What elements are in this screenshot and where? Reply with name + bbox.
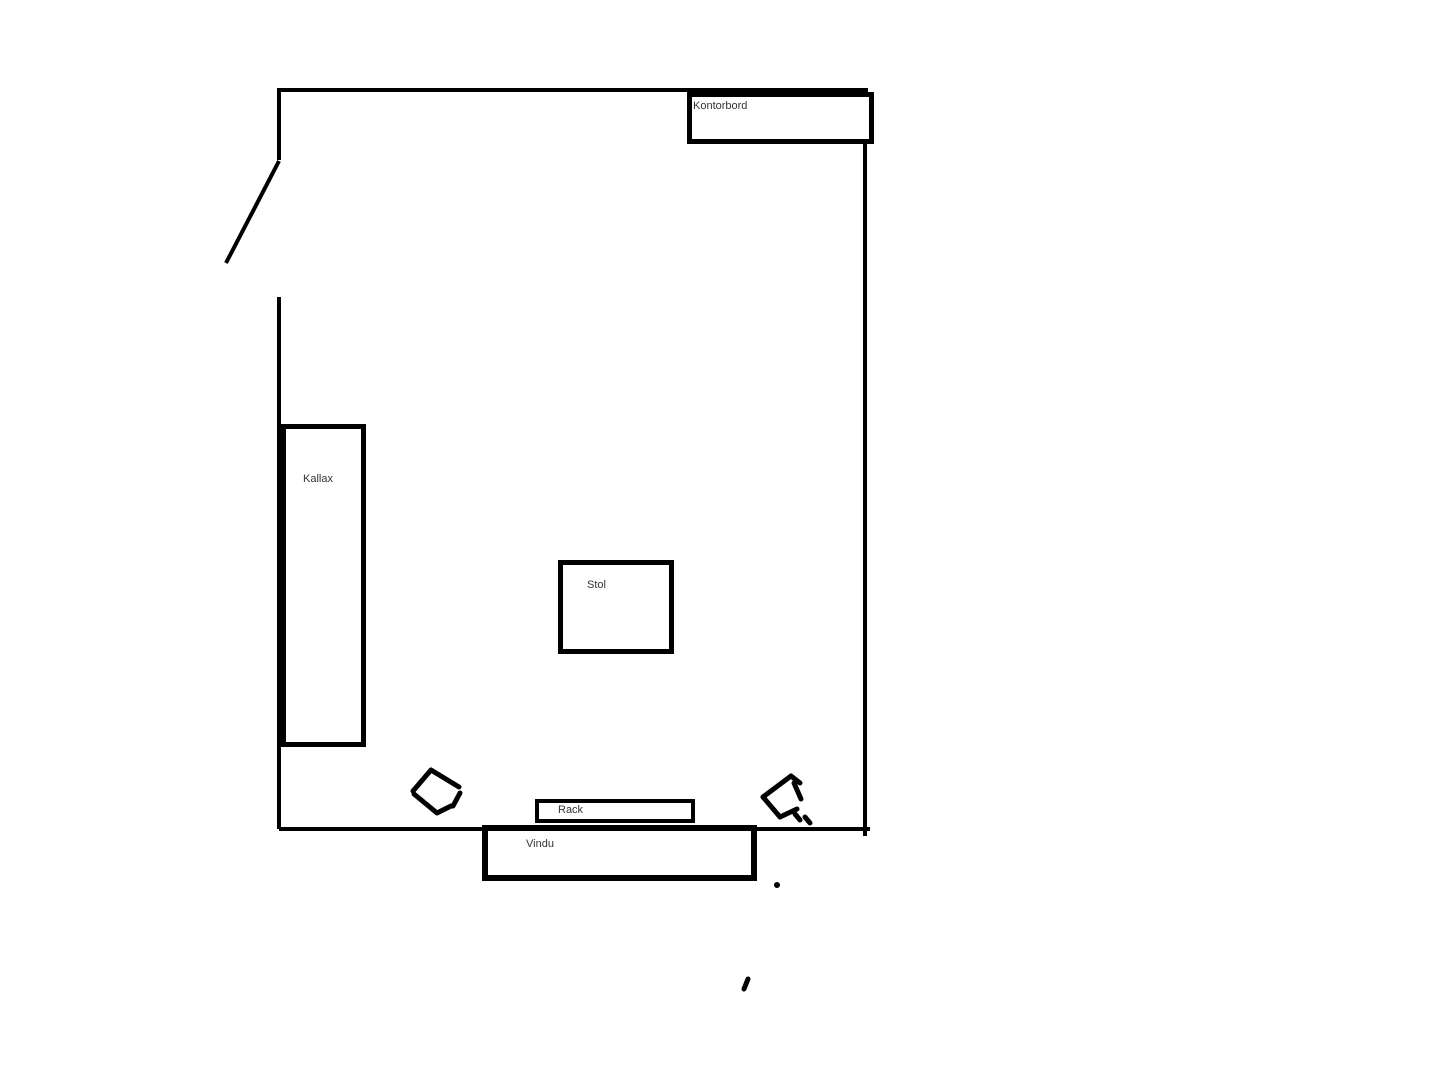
sketch-left-right-stroke <box>453 793 460 806</box>
sketch-right-dash-1 <box>795 814 800 820</box>
sketch-left-bottom-strokes <box>414 794 451 813</box>
ink-comma-mark <box>744 979 748 989</box>
room-walls-drawing <box>0 0 1455 1080</box>
furniture-stol-label: Stol <box>587 579 606 592</box>
furniture-vindu: Vindu <box>482 825 757 881</box>
furniture-kontorbord-label: Kontorbord <box>693 100 747 113</box>
floor-plan-canvas: Kontorbord Kallax Stol Rack Vindu <box>0 0 1455 1080</box>
furniture-kontorbord: Kontorbord <box>687 92 874 144</box>
ink-dot <box>774 882 780 888</box>
furniture-kallax-label: Kallax <box>303 473 333 486</box>
door-swing-line <box>226 161 279 263</box>
sketch-right-dash-2 <box>805 817 810 823</box>
sketch-left-top-strokes <box>413 770 459 791</box>
furniture-rack: Rack <box>535 799 695 823</box>
furniture-stol: Stol <box>558 560 674 654</box>
furniture-kallax: Kallax <box>281 424 366 747</box>
sketch-tilted-box-left <box>413 770 460 813</box>
sketch-tilted-box-right <box>763 776 810 823</box>
furniture-rack-label: Rack <box>558 804 583 817</box>
sketch-right-left-stroke <box>763 797 780 817</box>
furniture-vindu-label: Vindu <box>526 838 554 851</box>
